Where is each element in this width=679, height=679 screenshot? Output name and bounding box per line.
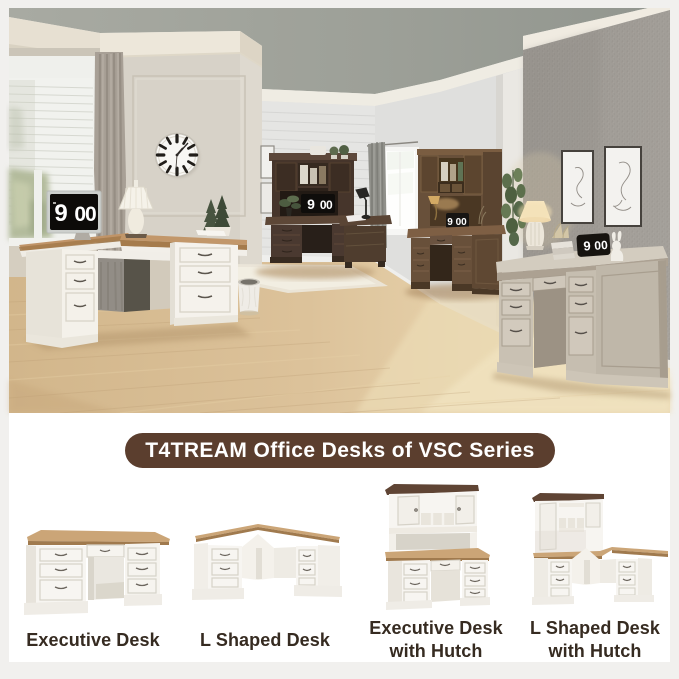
svg-text:00: 00 [320, 198, 333, 212]
svg-text:00: 00 [594, 238, 609, 253]
svg-text:9: 9 [583, 238, 591, 253]
svg-text:9 00: 9 00 [447, 217, 467, 228]
svg-text:00: 00 [74, 203, 96, 226]
svg-text:9: 9 [307, 196, 315, 212]
svg-text:9: 9 [54, 200, 67, 227]
